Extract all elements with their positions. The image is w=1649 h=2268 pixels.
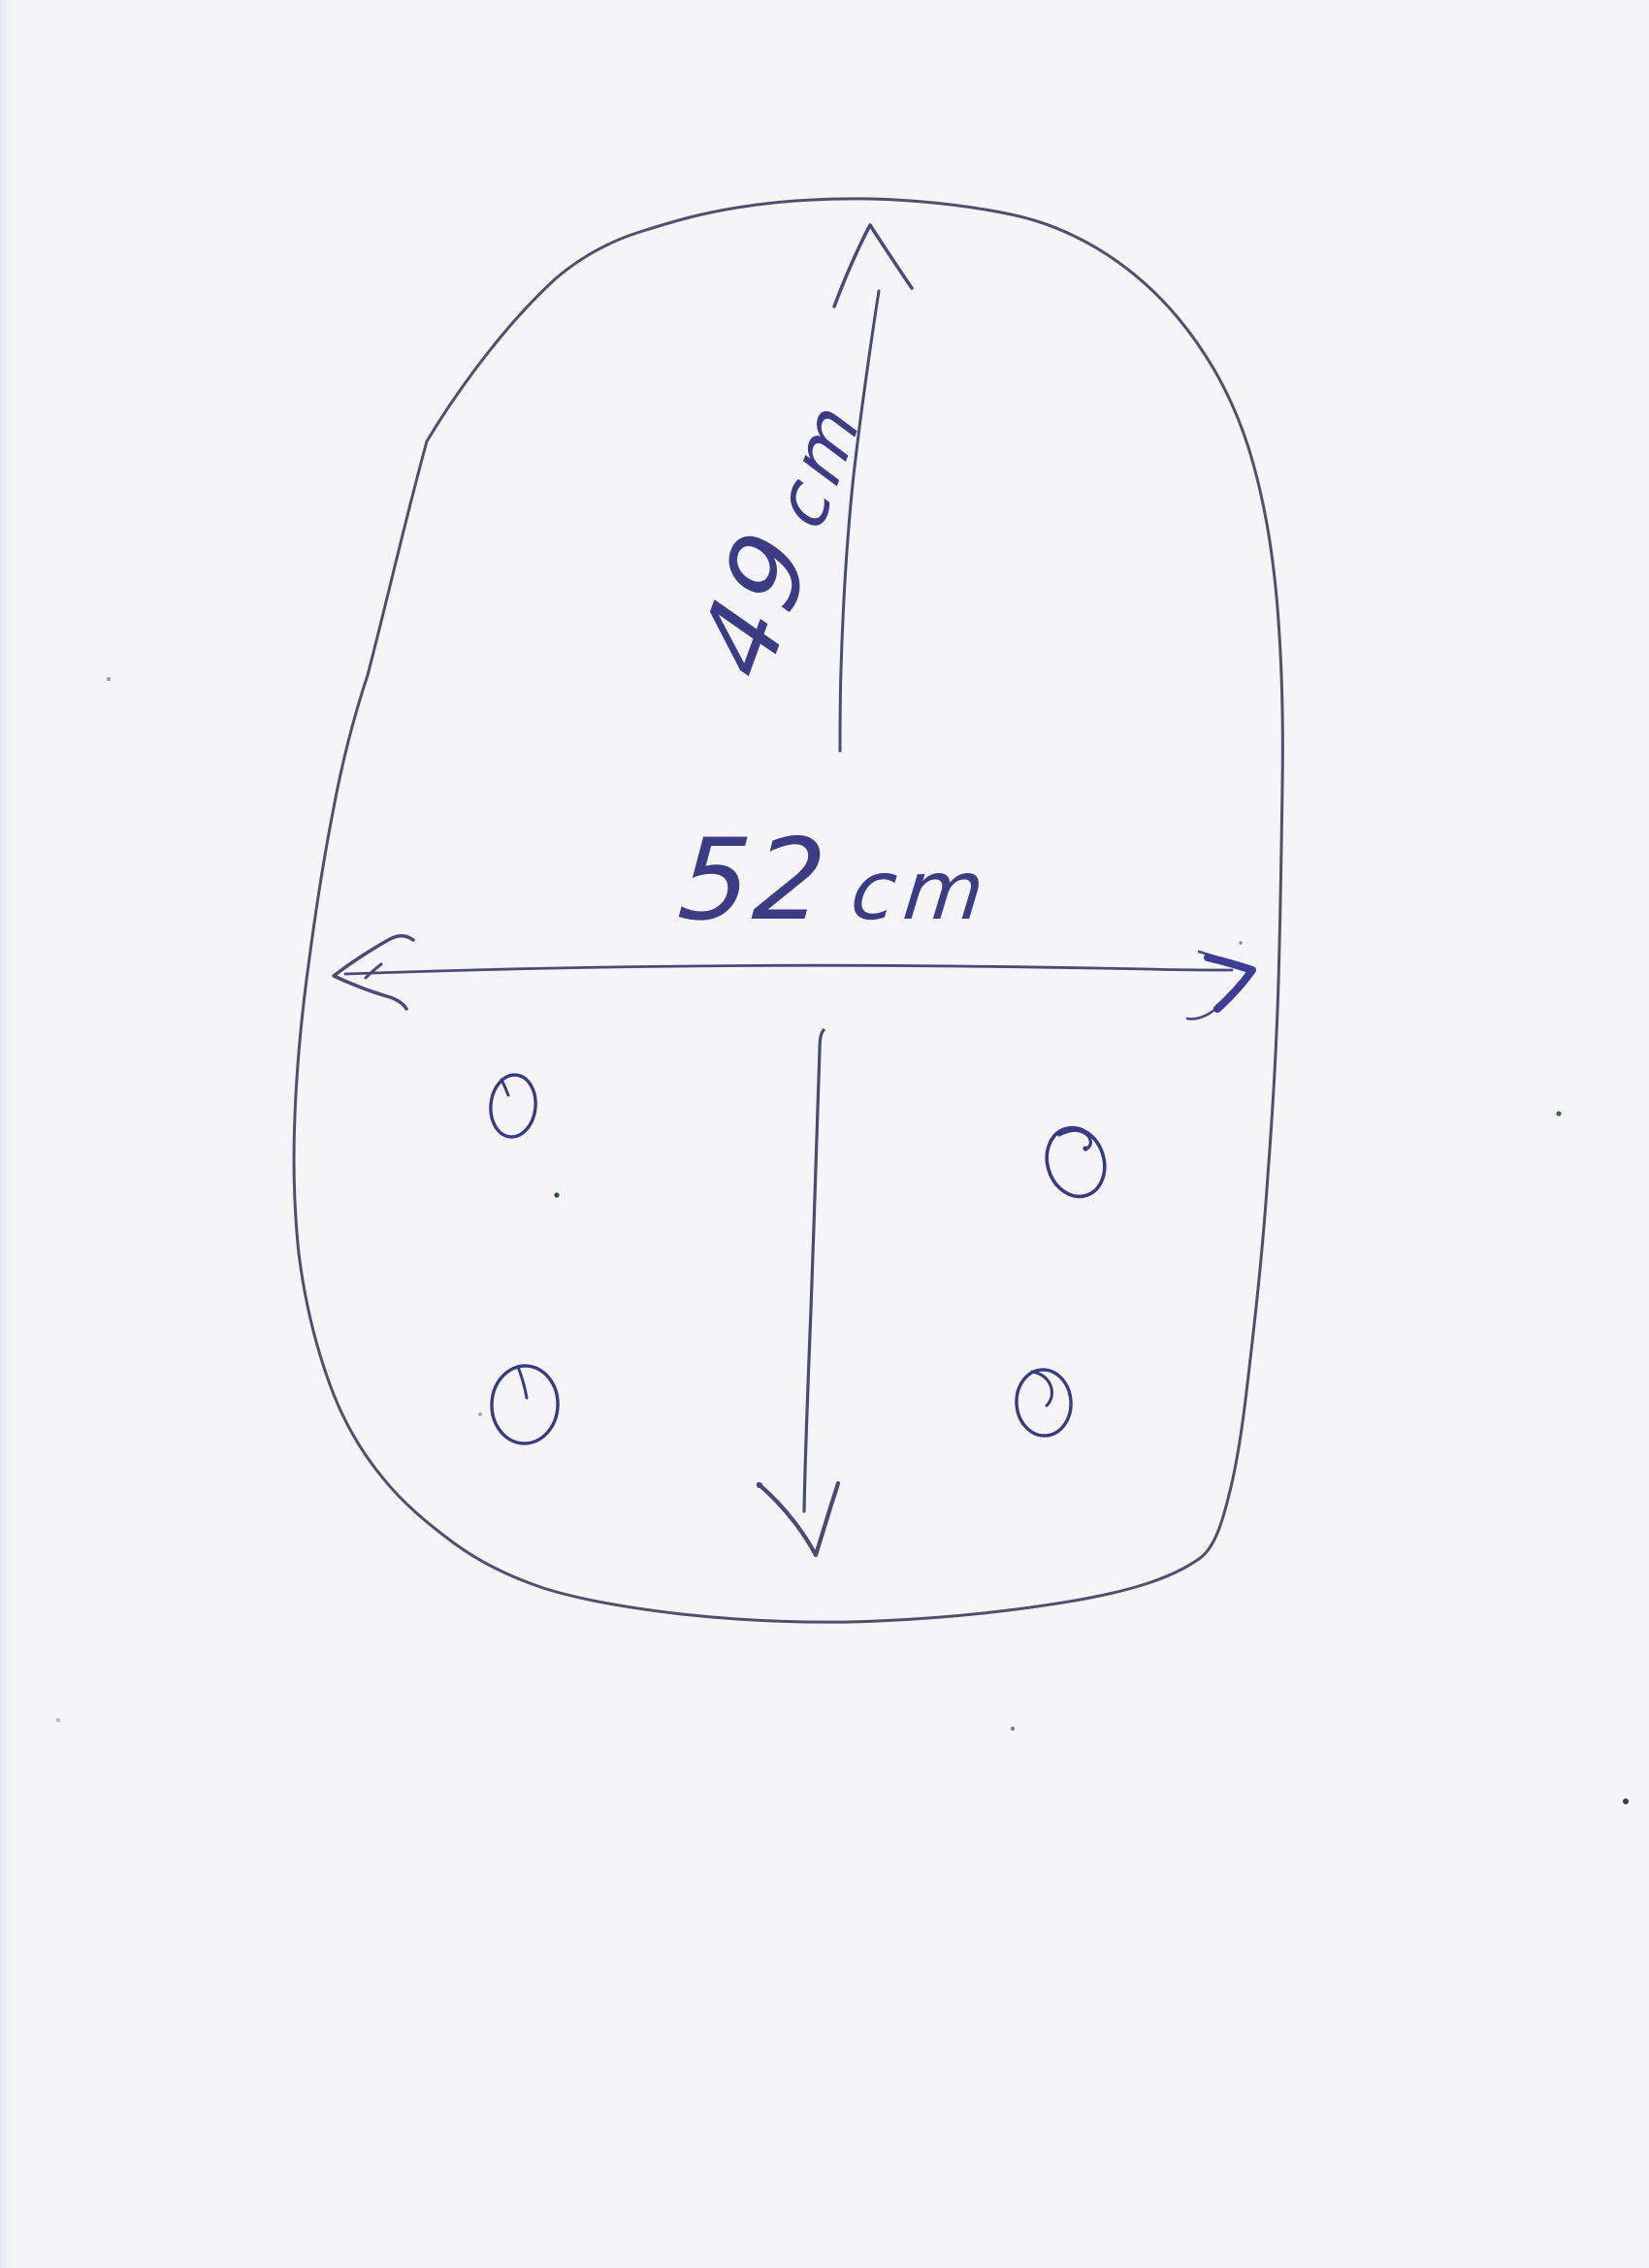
- hole-top-left-notch: [501, 1080, 508, 1095]
- height-arrow-head: [834, 225, 912, 307]
- hole-top-left: [488, 1073, 538, 1139]
- scanned-paper: { "paper": { "background_color": "#f5f5f…: [0, 0, 1649, 2268]
- paper-speck: [1556, 1111, 1561, 1116]
- paper-speck: [478, 1412, 482, 1416]
- width-arrow-right-head: [1208, 957, 1252, 1009]
- center-arrow-head: [759, 1483, 838, 1555]
- paper-speck: [554, 1192, 559, 1197]
- hole-top-right: [1038, 1120, 1113, 1204]
- width-arrow: [334, 936, 1253, 1020]
- paper-speck: [56, 1718, 60, 1722]
- center-arrow-head-ink-blob: [757, 1482, 762, 1488]
- sketch-canvas: [0, 0, 1649, 2268]
- width-dimension-number: 52: [675, 825, 832, 937]
- hole-bottom-left: [491, 1365, 560, 1444]
- width-arrow-shaft: [345, 965, 1232, 974]
- center-arrow-shaft: [804, 1030, 824, 1511]
- scanner-edge-mark: [4, 199, 10, 209]
- paper-speck: [840, 1657, 845, 1666]
- center-arrow: [757, 1030, 838, 1555]
- hole-bottom-right-curl: [1032, 1372, 1051, 1406]
- paper-speck: [1239, 941, 1243, 945]
- width-dimension-label: 52 cm: [679, 825, 991, 937]
- height-arrow-shaft: [840, 291, 879, 751]
- holes: [488, 1073, 1114, 1444]
- paper-speck: [1623, 1798, 1629, 1804]
- paper-speck: [107, 677, 111, 681]
- hole-bottom-left-notch: [518, 1367, 527, 1398]
- paper-speck: [1011, 1727, 1015, 1731]
- scanner-edge-mark: [2, 260, 7, 268]
- hole-top-right-ink-blob: [1083, 1146, 1087, 1150]
- width-dimension-unit: cm: [847, 850, 995, 931]
- width-arrow-shaft-tick: [366, 964, 381, 978]
